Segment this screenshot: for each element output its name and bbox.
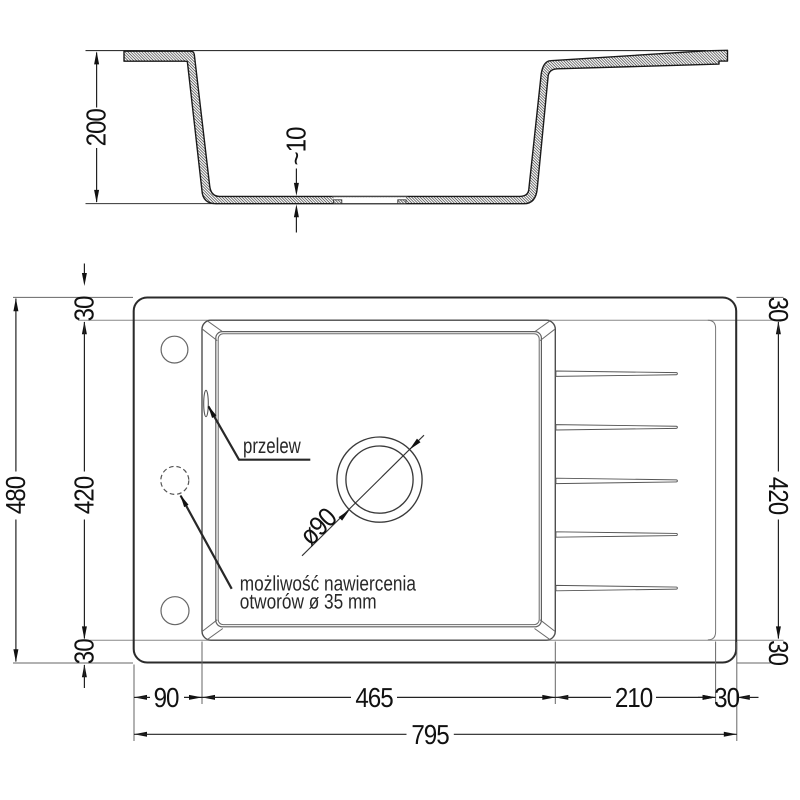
svg-text:480: 480 [0,476,31,514]
svg-text:420: 420 [763,477,794,515]
svg-text:90: 90 [154,682,180,713]
svg-text:30: 30 [69,296,100,322]
svg-text:otworów ø 35 mm: otworów ø 35 mm [240,591,377,614]
svg-text:30: 30 [69,639,100,665]
svg-text:30: 30 [714,682,740,713]
svg-text:~10: ~10 [280,127,311,166]
svg-text:465: 465 [355,682,393,713]
svg-text:200: 200 [81,108,112,146]
svg-text:30: 30 [763,297,794,323]
svg-text:30: 30 [763,640,794,666]
svg-text:795: 795 [411,719,449,750]
svg-text:420: 420 [69,476,100,514]
svg-text:przelew: przelew [243,434,301,458]
svg-text:210: 210 [615,682,653,713]
